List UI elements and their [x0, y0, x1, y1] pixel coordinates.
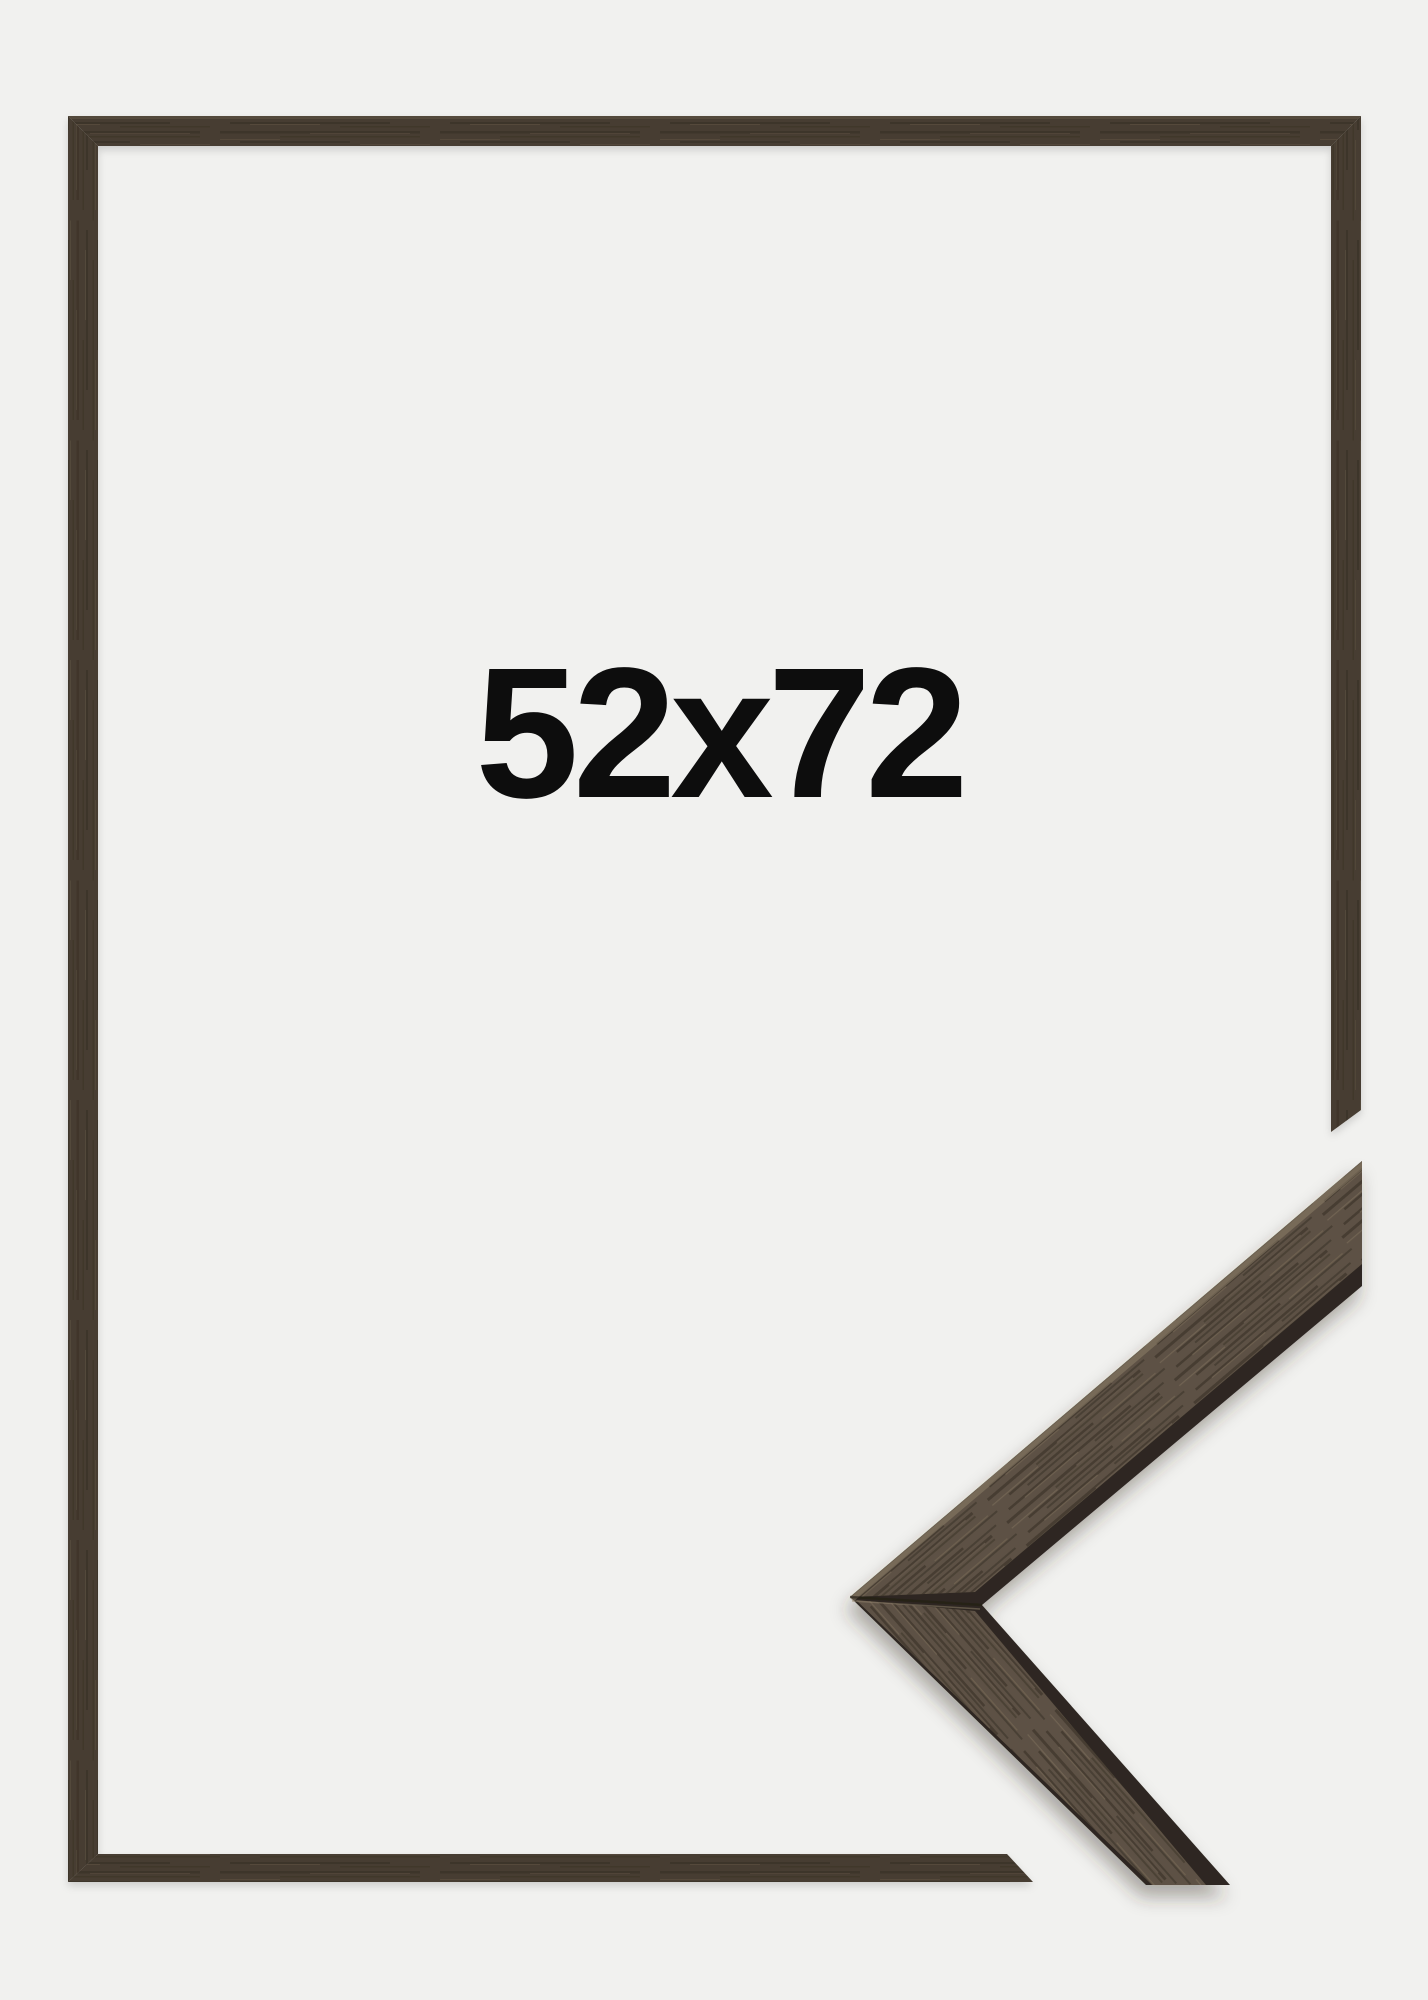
size-label: 52x72: [475, 641, 962, 827]
frame-right-border: [1331, 116, 1361, 1132]
picture-frame: [68, 116, 1361, 1882]
sample-upper-arm-face: [850, 1161, 1362, 1602]
corner-profile-sample: [850, 1161, 1362, 1885]
frame-top-edge-highlight: [68, 116, 1361, 119]
product-image-stage: 52x72: [0, 0, 1428, 2000]
frame-bottom-border: [68, 1854, 1033, 1882]
sample-lower-arm-face: [856, 1600, 1206, 1885]
frame-scene: [0, 0, 1428, 2000]
frame-top-border: [68, 116, 1361, 146]
frame-left-border: [68, 116, 98, 1882]
sample-upper-arm-edge-highlight: [850, 1161, 1362, 1602]
